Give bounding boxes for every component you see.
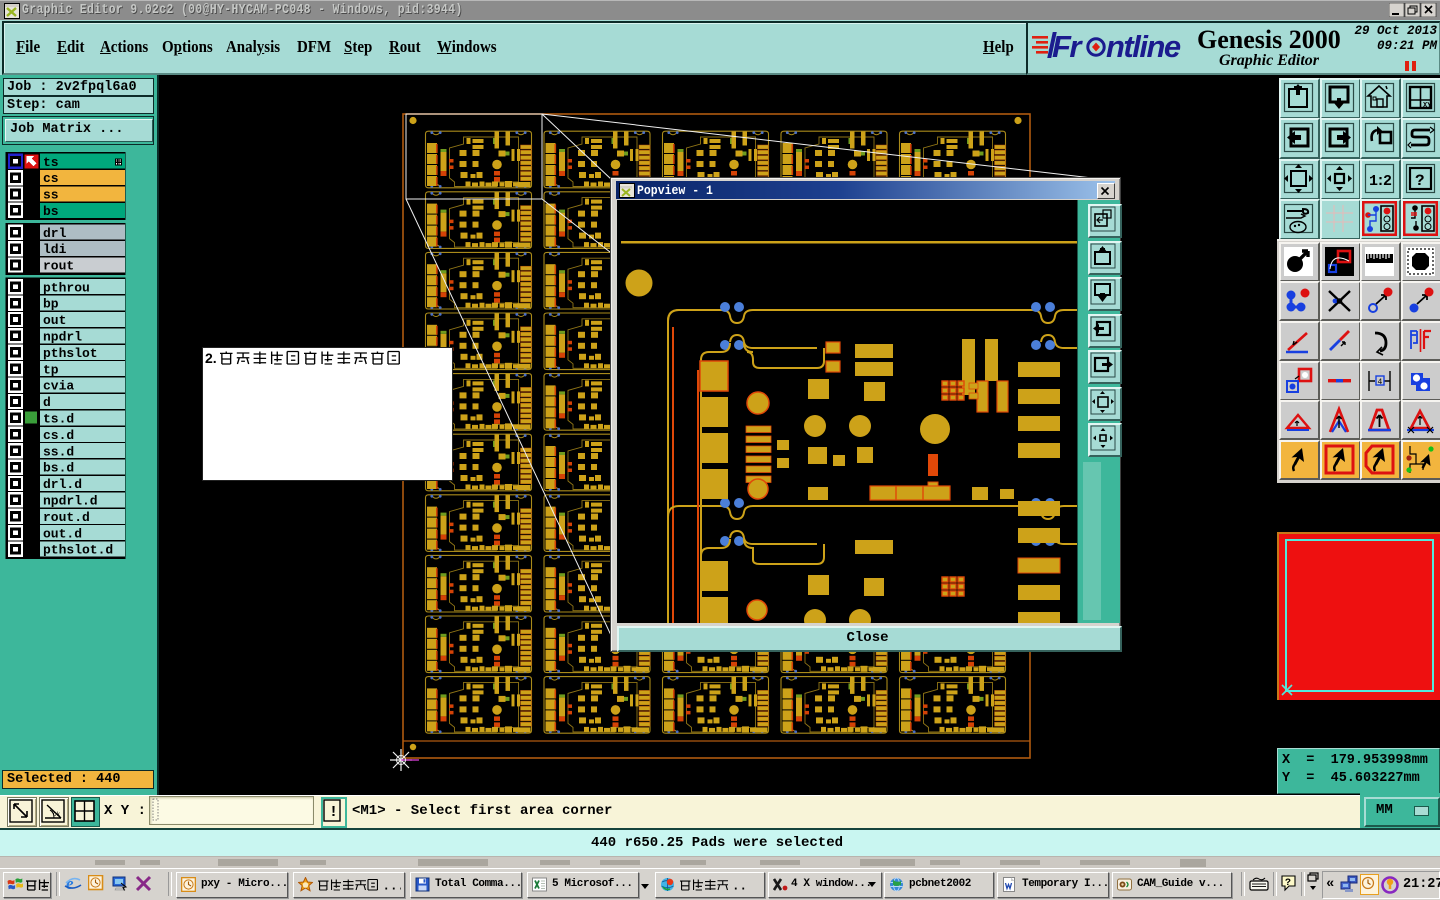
svg-text:bs: bs xyxy=(43,204,59,219)
svg-text:ts: ts xyxy=(43,155,59,170)
svg-text:...: ... xyxy=(383,880,402,893)
svg-text:rout: rout xyxy=(43,259,74,274)
svg-text:d: d xyxy=(43,395,51,410)
svg-text:bp: bp xyxy=(43,297,59,312)
svg-text:out.d: out.d xyxy=(43,526,82,541)
svg-text:npdrl.d: npdrl.d xyxy=(43,494,98,509)
svg-text:XY: XY xyxy=(1423,102,1432,110)
svg-text:Fr: Fr xyxy=(1052,29,1083,64)
svg-text:2.: 2. xyxy=(205,350,217,366)
svg-text:..: .. xyxy=(732,880,747,893)
svg-text:out: out xyxy=(43,313,66,328)
svg-text:rout.d: rout.d xyxy=(43,510,90,525)
svg-text:cs: cs xyxy=(43,171,59,186)
svg-text:tp: tp xyxy=(43,362,59,377)
svg-text:?: ? xyxy=(1415,172,1425,190)
svg-text:ok: ok xyxy=(53,811,61,818)
svg-text:4: 4 xyxy=(1378,378,1383,387)
svg-text:pthrou: pthrou xyxy=(43,280,90,295)
svg-text:cvia: cvia xyxy=(43,379,74,394)
svg-text:ntline: ntline xyxy=(1106,29,1181,64)
svg-text:ldi: ldi xyxy=(43,242,67,257)
svg-text:drl.d: drl.d xyxy=(43,477,82,492)
svg-text:pthslot: pthslot xyxy=(43,346,98,361)
svg-text:!: ! xyxy=(329,804,338,821)
svg-text:bs.d: bs.d xyxy=(43,461,74,476)
svg-text:pthslot.d: pthslot.d xyxy=(43,543,113,558)
svg-text:cs.d: cs.d xyxy=(43,428,74,443)
svg-text:npdrl: npdrl xyxy=(43,330,82,345)
svg-text:drl: drl xyxy=(43,226,67,241)
svg-text:1:2: 1:2 xyxy=(1369,173,1392,190)
svg-text:?: ? xyxy=(1285,878,1291,889)
svg-text:ts.d: ts.d xyxy=(43,412,74,427)
svg-text:ss: ss xyxy=(43,188,59,203)
svg-text:e: e xyxy=(66,874,74,893)
svg-text:ss.d: ss.d xyxy=(43,444,74,459)
